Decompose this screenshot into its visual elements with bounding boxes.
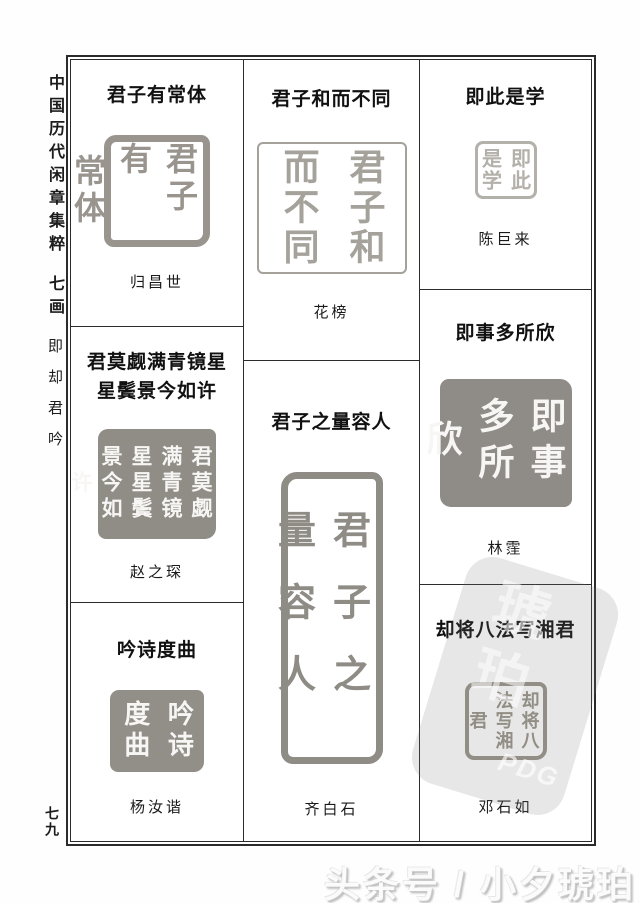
seal-column-text: 君子有 [111,142,203,240]
seal-column-text: 君 [465,711,491,731]
seal-impression: 君莫觑 满青镜 星星鬓 景今如 许 [98,429,216,539]
seal-entry: 君莫觑满青镜星 星鬓景今如许 君莫觑 满青镜 星星鬓 景今如 许 赵之琛 [71,326,243,602]
seal-column-text: 是学 [476,148,505,192]
channel-watermark: 头条号 / 小夕琥珀 [0,856,636,903]
seal-impression: 君子之 量容人 [281,472,383,764]
seal-column-text: 常体 [65,154,111,228]
seal-column-text: 星星鬓 [126,445,156,523]
seal-column-text: 即此 [505,148,534,192]
seal-text-title: 君子之量容人 [271,409,391,438]
page-number: 七九 [40,806,60,838]
seal-column-text: 度曲 [117,700,154,762]
book-page: 中国历代闲章集粹 七画 即却君吟 七九 君子有常体 君子有 常体 归昌世 君莫觑… [0,0,640,903]
catalog-frame: 君子有常体 君子有 常体 归昌世 君莫觑满青镜星 星鬓景今如许 君莫觑 满青镜 [66,55,596,846]
seal-artist: 归昌世 [130,271,184,292]
column-2: 君子和而不同 君子和 而不同 花榜 君子之量容人 君子之 量容人 齐白石 [243,60,419,841]
seal-column-text: 君莫觑 [186,445,216,523]
seal-entry: 即此是学 即此 是学 陈巨来 [420,60,591,289]
seal-impression: 即事 多所 欣 [440,379,572,507]
seal-impression: 却将八 法写湘 君 [465,682,547,760]
seal-column-text: 法写湘 [491,691,517,751]
seal-impression: 君子和 而不同 [257,142,407,274]
seal-entry: 君子之量容人 君子之 量容人 齐白石 [244,360,419,841]
seal-artist: 杨汝谐 [130,796,184,817]
seal-impression: 吟诗 度曲 [110,690,204,772]
seal-entry: 君子有常体 君子有 常体 归昌世 [71,60,243,326]
seal-column-text: 多所 [468,397,520,489]
seal-artist: 齐白石 [304,798,358,819]
seal-impression: 君子有 常体 [104,135,210,247]
title-line-1: 君莫觑满青镜星 [87,349,227,378]
seal-artist: 陈巨来 [478,228,532,249]
seal-text-title: 即事多所欣 [455,320,555,349]
seal-text-title: 君子有常体 [107,82,207,111]
seal-column-text: 而不同 [273,148,325,268]
column-1: 君子有常体 君子有 常体 归昌世 君莫觑满青镜星 星鬓景今如许 君莫觑 满青镜 [71,60,243,841]
book-title: 中国历代闲章集粹 [46,74,63,258]
seal-artist: 花榜 [313,301,349,322]
title-line-2: 星鬓景今如许 [87,378,227,407]
seal-column-text: 欣 [416,420,468,466]
seal-entry: 却将八法写湘君 却将八 法写湘 君 邓石如 [420,584,591,841]
seal-column-text: 量容人 [266,510,321,726]
seal-column-text: 景今如 [96,445,126,523]
seal-entry: 吟诗度曲 吟诗 度曲 杨汝谐 [71,602,243,841]
seal-entry: 即事多所欣 即事 多所 欣 林霔 [420,289,591,584]
seal-artist: 赵之琛 [130,561,184,582]
seal-column-text: 吟诗 [160,700,197,762]
seal-column-text: 即事 [520,397,572,489]
seal-impression: 即此 是学 [475,141,537,199]
seal-text-title: 君莫觑满青镜星 星鬓景今如许 [87,349,227,406]
seal-text-title: 却将八法写湘君 [435,617,575,646]
seal-column-text: 君子之 [321,510,376,726]
seal-entry: 君子和而不同 君子和 而不同 花榜 [244,60,419,360]
seal-text-title: 吟诗度曲 [117,637,197,666]
seal-column-text: 却将八 [517,691,543,751]
seal-text-title: 君子和而不同 [271,86,391,115]
seal-artist: 林霔 [487,537,523,558]
column-3: 即此是学 即此 是学 陈巨来 即事多所欣 即事 多所 欣 林霔 [419,60,591,841]
seal-column-text: 许 [66,471,96,497]
seal-column-text: 君子和 [339,148,391,268]
section-label: 七画 [46,275,63,321]
seal-column-text: 满青镜 [156,445,186,523]
seal-text-title: 即此是学 [465,84,545,113]
catalog-grid: 君子有常体 君子有 常体 归昌世 君莫觑满青镜星 星鬓景今如许 君莫觑 满青镜 [70,59,592,842]
index-characters: 即却君吟 [46,338,62,462]
seal-artist: 邓石如 [478,796,532,817]
